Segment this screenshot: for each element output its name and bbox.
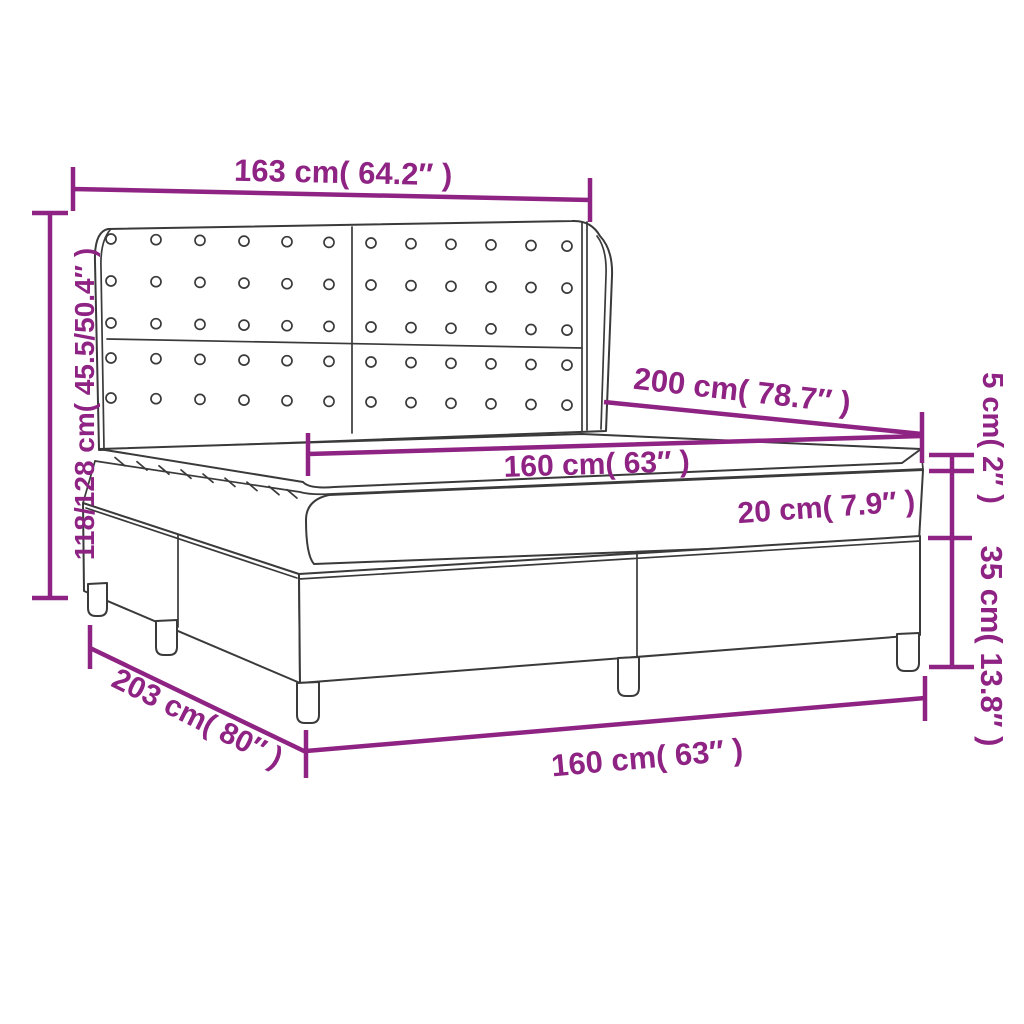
tuft-button: [151, 277, 161, 287]
tuft-button: [486, 324, 496, 334]
tuft-button: [526, 325, 536, 335]
dim-line-base-width: [306, 676, 925, 751]
dim-label-topper-thickness: 5 cm( 2″ ): [976, 372, 1008, 504]
tuft-button: [151, 354, 161, 364]
tuft-button: [106, 393, 116, 403]
leg-front-left: [297, 682, 319, 723]
tuft-button: [446, 398, 456, 408]
tuft-button: [195, 235, 205, 245]
tuft-button: [239, 278, 249, 288]
tuft-button: [151, 235, 161, 245]
tuft-button: [151, 394, 161, 404]
tuft-button: [486, 359, 496, 369]
leg-front-middle: [618, 657, 639, 696]
tuft-button: [151, 319, 161, 329]
tuft-button: [239, 395, 249, 405]
dim-label-total-length: 203 cm( 80″ ): [107, 662, 288, 775]
leg-mid-left: [156, 620, 177, 655]
tuft-button: [486, 282, 496, 292]
tuft-button: [562, 400, 572, 410]
tuft-button: [239, 236, 249, 246]
tuft-button: [282, 279, 292, 289]
tuft-button: [406, 281, 416, 291]
tuft-button: [366, 238, 376, 248]
dim-label-bed-length: 200 cm( 78.7″ ): [632, 361, 853, 420]
tuft-button: [562, 325, 572, 335]
tuft-button: [526, 241, 536, 251]
tuft-button: [486, 240, 496, 250]
dim-label-base-width: 160 cm( 63″ ): [550, 732, 745, 784]
dim-label-base-height: 35 cm( 13.8″ ): [974, 546, 1009, 747]
tuft-button: [526, 400, 536, 410]
tuft-button: [406, 358, 416, 368]
tuft-button: [195, 319, 205, 329]
tuft-button: [486, 399, 496, 409]
tuft-button: [324, 321, 334, 331]
dim-bracket-right-heights: [928, 455, 974, 667]
tuft-button: [366, 357, 376, 367]
leg-front-right: [897, 633, 919, 671]
bed-dimension-drawing: 163 cm( 64.2″ ) 118/128 cm( 45.5/50.4″ )…: [0, 0, 1024, 1024]
dim-label-mattress-width: 160 cm( 63″ ): [503, 445, 690, 484]
dimension-diagram: 163 cm( 64.2″ ) 118/128 cm( 45.5/50.4″ )…: [0, 0, 1024, 1024]
tuft-button: [526, 283, 536, 293]
tuft-button: [562, 360, 572, 370]
tuft-button: [446, 323, 456, 333]
tuft-button: [406, 398, 416, 408]
tuft-button: [282, 396, 292, 406]
topper-hatch-mark: [247, 482, 257, 490]
tuft-button: [562, 283, 572, 293]
headboard: [95, 221, 612, 450]
leg-rear-left: [88, 583, 107, 616]
tuft-button: [446, 239, 456, 249]
tuft-button: [239, 320, 249, 330]
tuft-button: [195, 394, 205, 404]
tuft-button: [406, 239, 416, 249]
tuft-button: [366, 322, 376, 332]
tuft-button: [446, 358, 456, 368]
dim-label-total-height: 118/128 cm( 45.5/50.4″ ): [69, 248, 100, 560]
tuft-button: [195, 277, 205, 287]
tuft-button: [366, 397, 376, 407]
tuft-button: [282, 356, 292, 366]
tuft-button: [446, 281, 456, 291]
dim-line-total-height: [32, 213, 68, 598]
tuft-button: [282, 321, 292, 331]
tuft-button: [324, 237, 334, 247]
tuft-button: [106, 234, 116, 244]
headboard-outline: [95, 221, 612, 450]
tuft-button: [282, 237, 292, 247]
base-left-face: [83, 503, 300, 683]
tuft-button: [324, 356, 334, 366]
tuft-button: [324, 279, 334, 289]
topper-hatch-mark: [159, 466, 169, 474]
tuft-button: [195, 354, 205, 364]
tuft-button: [106, 276, 116, 286]
tuft-button: [366, 280, 376, 290]
tuft-button: [106, 353, 116, 363]
tuft-button: [406, 323, 416, 333]
tuft-button: [562, 241, 572, 251]
dim-label-headboard-width: 163 cm( 64.2″ ): [234, 153, 453, 193]
tuft-button: [106, 318, 116, 328]
tuft-button: [324, 396, 334, 406]
tuft-button: [239, 355, 249, 365]
tuft-button: [526, 360, 536, 370]
